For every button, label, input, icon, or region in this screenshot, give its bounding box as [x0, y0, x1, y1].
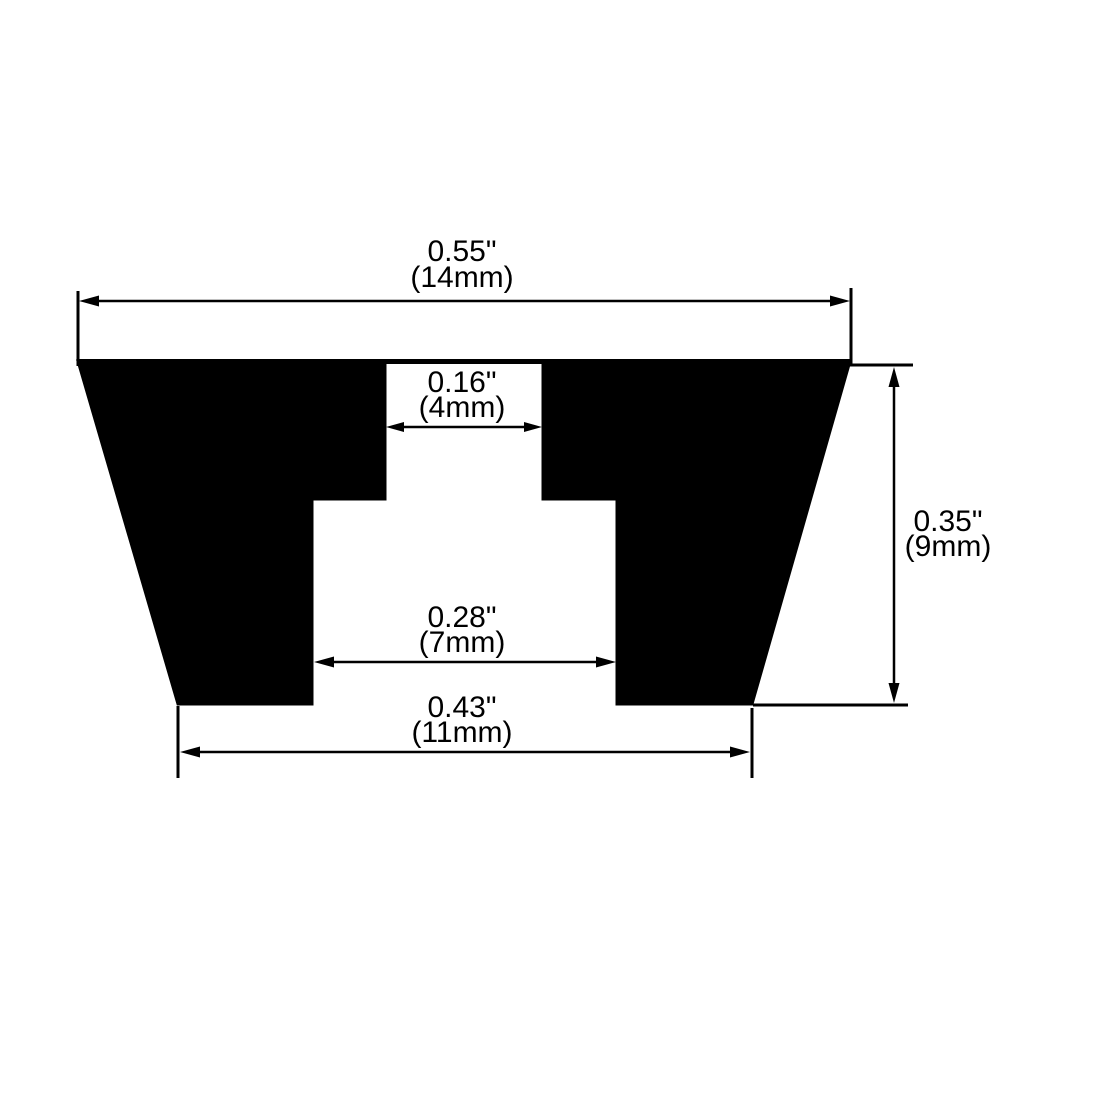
arrow-left-icon	[386, 422, 404, 432]
arrow-left-icon	[180, 747, 200, 758]
dim-top-slot: 0.16" (4mm)	[386, 366, 542, 432]
shape-left-half	[78, 361, 385, 704]
dim-cavity-width: 0.28" (7mm)	[314, 601, 616, 668]
dim-cavity-metric: (7mm)	[419, 626, 506, 659]
dim-top-width-metric: (14mm)	[410, 261, 513, 294]
arrow-up-icon	[889, 367, 900, 387]
arrow-right-icon	[524, 422, 542, 432]
diagram-canvas: 0.55" (14mm) 0.16" (4mm) 0.35" (9mm) 0.	[0, 0, 1100, 1100]
arrow-left-icon	[314, 657, 334, 668]
arrow-down-icon	[889, 683, 900, 703]
shape-right-half	[543, 361, 850, 704]
dim-top-width: 0.55" (14mm)	[78, 235, 851, 366]
arrow-right-icon	[730, 747, 750, 758]
dim-top-slot-metric: (4mm)	[419, 391, 506, 424]
rubber-foot-dimension-diagram: 0.55" (14mm) 0.16" (4mm) 0.35" (9mm) 0.	[0, 0, 1100, 1100]
arrow-right-icon	[830, 296, 850, 307]
arrow-left-icon	[79, 296, 99, 307]
arrow-right-icon	[596, 657, 616, 668]
dim-bottom-width-metric: (11mm)	[411, 716, 512, 749]
dim-height-metric: (9mm)	[905, 530, 992, 563]
